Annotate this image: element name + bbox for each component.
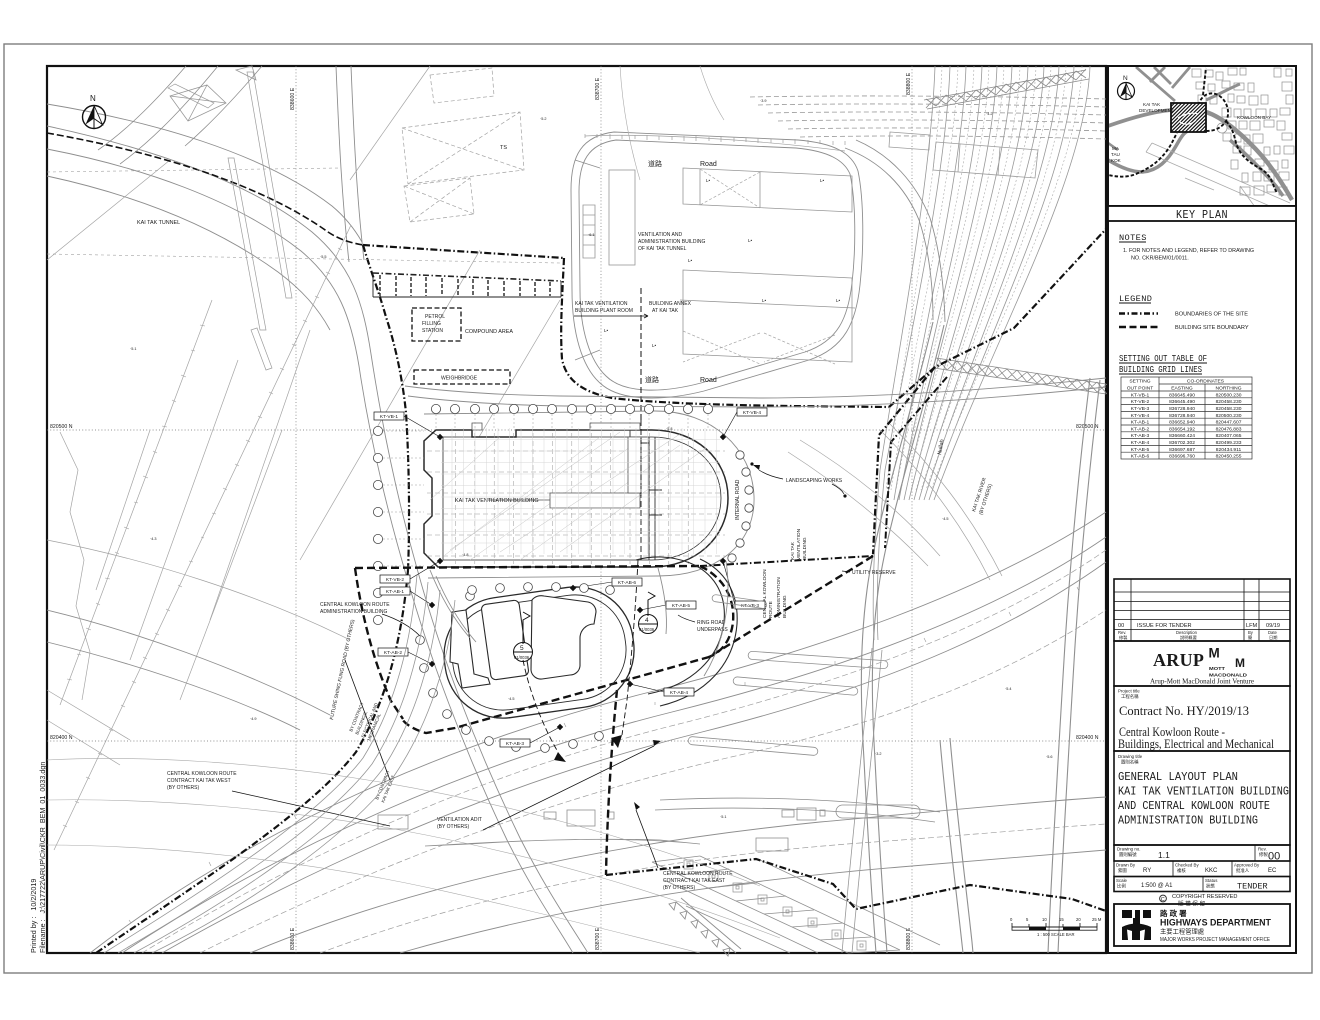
svg-text:Status: Status (1205, 878, 1218, 883)
svg-text:KT-AB-3: KT-AB-3 (506, 741, 524, 747)
svg-text:Drawing no.: Drawing no. (1117, 847, 1140, 852)
svg-text:VENTILATION: VENTILATION (796, 528, 802, 560)
svg-text:Drawing title: Drawing title (1118, 754, 1143, 759)
svg-text:Drawn By: Drawn By (1116, 863, 1136, 868)
svg-text:主要工程管理處: 主要工程管理處 (1160, 927, 1205, 936)
svg-text:Road: Road (700, 161, 717, 168)
svg-text:Filename : J:\217722\ARUP\Ci: Filename : J:\217722\ARUP\Civil\CKR_BEM_… (38, 762, 47, 953)
svg-text:838700 E: 838700 E (595, 927, 601, 950)
svg-text:KAI TAK VENTILATION: KAI TAK VENTILATION (575, 301, 628, 307)
svg-text:LANDSCAPING WORKS: LANDSCAPING WORKS (786, 478, 843, 484)
svg-text:820450.255: 820450.255 (1216, 454, 1242, 460)
svg-text:820400 N: 820400 N (50, 735, 73, 741)
svg-text:修製: 修製 (1119, 634, 1127, 641)
svg-text:·3.2: ·3.2 (875, 752, 882, 756)
svg-text:VENTILATION ADIT: VENTILATION ADIT (437, 817, 482, 823)
svg-text:MA: MA (1112, 146, 1120, 151)
svg-text:1.1: 1.1 (1158, 850, 1170, 860)
svg-text:836702.302: 836702.302 (1169, 440, 1195, 446)
svg-text:838800 E: 838800 E (906, 72, 912, 95)
svg-text:L•: L• (706, 178, 711, 183)
svg-text:Road: Road (700, 377, 717, 384)
svg-text:NOTES: NOTES (1119, 233, 1147, 243)
svg-text:820434.911: 820434.911 (1216, 447, 1242, 453)
svg-text:MAJOR WORKS PROJECT MANAGEMENT: MAJOR WORKS PROJECT MANAGEMENT OFFICE (1160, 937, 1270, 943)
svg-text:ROUTE: ROUTE (768, 601, 774, 618)
svg-text:00: 00 (1118, 623, 1124, 629)
svg-text:CENTRAL KOWLOON: CENTRAL KOWLOON (762, 569, 768, 618)
svg-text:修製: 修製 (1259, 851, 1268, 858)
svg-text:CENTRAL KOWLOON ROUTE: CENTRAL KOWLOON ROUTE (320, 602, 390, 608)
svg-text:·5.1: ·5.1 (720, 815, 727, 819)
svg-text:KT-AB-6: KT-AB-6 (1131, 454, 1150, 460)
svg-text:·4.9: ·4.9 (250, 717, 257, 721)
svg-text:820458.230: 820458.230 (1216, 406, 1242, 412)
svg-text:KAI TAK VENTILATION BUILDING: KAI TAK VENTILATION BUILDING (1118, 786, 1289, 799)
svg-text:836652.940: 836652.940 (1169, 420, 1195, 426)
svg-text:BUILDING GRID LINES: BUILDING GRID LINES (1119, 364, 1202, 375)
svg-text:C: C (1161, 897, 1165, 903)
svg-text:複核: 複核 (1177, 867, 1186, 874)
svg-text:狀態: 狀態 (1206, 883, 1215, 890)
svg-text:836654.192: 836654.192 (1169, 426, 1195, 432)
svg-text:20: 20 (1076, 917, 1081, 922)
svg-text:838600 E: 838600 E (290, 87, 296, 110)
svg-text:ARUP: ARUP (1153, 650, 1204, 670)
svg-text:L•: L• (604, 328, 609, 333)
svg-text:CO-ORDINATES: CO-ORDINATES (1187, 379, 1225, 385)
svg-text:836697.687: 836697.687 (1169, 447, 1195, 453)
svg-text:KT-AB-6: KT-AB-6 (618, 580, 636, 586)
svg-text:CONTRACT KAI TAK WEST: CONTRACT KAI TAK WEST (167, 778, 231, 784)
svg-text:KT-VB-2: KT-VB-2 (386, 577, 404, 583)
svg-text:BUILDING: BUILDING (802, 537, 808, 560)
svg-text:838600 E: 838600 E (290, 927, 296, 950)
svg-text:820400 N: 820400 N (1076, 735, 1099, 741)
svg-text:BOUNDARIES OF THE SITE: BOUNDARIES OF THE SITE (1175, 312, 1248, 318)
svg-text:ISSUE FOR TENDER: ISSUE FOR TENDER (1137, 623, 1192, 629)
svg-text:Buildings, Electrical and Mech: Buildings, Electrical and Mechanical (1118, 737, 1274, 751)
svg-text:Project title: Project title (1118, 689, 1140, 694)
svg-text:比例: 比例 (1117, 883, 1126, 890)
svg-text:820500.230: 820500.230 (1216, 392, 1242, 398)
svg-text:工程名稱: 工程名稱 (1121, 693, 1139, 700)
svg-text:ADMINISTRATION BUILDING: ADMINISTRATION BUILDING (638, 239, 706, 245)
svg-text:AND CENTRAL KOWLOON ROUTE: AND CENTRAL KOWLOON ROUTE (1118, 800, 1270, 813)
svg-text:01/0036: 01/0036 (514, 655, 530, 660)
svg-text:ADMINISTRATION: ADMINISTRATION (776, 577, 782, 618)
svg-text:OUT POINT: OUT POINT (1127, 386, 1154, 392)
svg-text:KT-VB-4: KT-VB-4 (1131, 413, 1150, 419)
svg-text:批准人: 批准人 (1236, 867, 1250, 874)
svg-text:KT-AB-3: KT-AB-3 (1131, 433, 1150, 439)
svg-text:·4.8: ·4.8 (462, 553, 469, 557)
svg-text:820407.065: 820407.065 (1216, 433, 1242, 439)
svg-text:KT-AB-2: KT-AB-2 (384, 650, 402, 656)
svg-text:LEGEND: LEGEND (1119, 294, 1152, 304)
svg-text:·5.8: ·5.8 (666, 427, 673, 431)
svg-text:ADMINISTRATION BUILDING: ADMINISTRATION BUILDING (320, 609, 388, 615)
svg-text:Scale: Scale (1116, 878, 1128, 883)
svg-text:KAI TAK VENTILATION BUILDING: KAI TAK VENTILATION BUILDING (455, 498, 539, 504)
svg-text:820476.883: 820476.883 (1216, 426, 1242, 432)
svg-text:GENERAL LAYOUT PLAN: GENERAL LAYOUT PLAN (1118, 771, 1238, 784)
svg-text:KOK: KOK (1111, 158, 1122, 163)
svg-text:820500.230: 820500.230 (1216, 413, 1242, 419)
svg-text:TENDER: TENDER (1237, 882, 1268, 892)
svg-text:道路: 道路 (648, 159, 662, 168)
svg-text:836696.760: 836696.760 (1169, 454, 1195, 460)
svg-text:KAI TAK: KAI TAK (790, 541, 796, 560)
svg-text:BUILDING PLANT ROOM: BUILDING PLANT ROOM (575, 308, 633, 314)
svg-text:CENTRAL KOWLOON ROUTE: CENTRAL KOWLOON ROUTE (167, 771, 237, 777)
svg-text:KT-VB-2: KT-VB-2 (1131, 399, 1150, 405)
svg-text:820447.607: 820447.607 (1216, 420, 1242, 426)
svg-text:KAI TAK: KAI TAK (1143, 102, 1161, 107)
svg-text:10: 10 (1042, 917, 1047, 922)
svg-text:VENTILATION AND: VENTILATION AND (638, 232, 682, 238)
svg-text:N: N (1123, 75, 1128, 82)
svg-text:RING ROAD: RING ROAD (697, 620, 726, 626)
svg-text:N: N (90, 94, 96, 103)
svg-text:PETROL: PETROL (425, 314, 445, 320)
svg-text:圖則編號: 圖則編號 (1119, 851, 1137, 858)
svg-text:Printed by : 10/2/2019: Printed by : 10/2/2019 (29, 879, 38, 953)
svg-text:RY: RY (1143, 868, 1151, 874)
svg-text:L•: L• (688, 258, 693, 263)
svg-text:5: 5 (520, 645, 524, 652)
svg-text:Contract No. HY/2019/13: Contract No. HY/2019/13 (1119, 704, 1249, 718)
svg-text:(BY OTHERS): (BY OTHERS) (167, 785, 199, 791)
svg-text:·5.2: ·5.2 (540, 117, 547, 121)
svg-text:KKC: KKC (1205, 868, 1218, 874)
svg-text:SETTING OUT TABLE OF: SETTING OUT TABLE OF (1119, 353, 1207, 364)
svg-text:KT-AB-4: KT-AB-4 (1131, 440, 1150, 446)
svg-text:TS: TS (500, 145, 507, 151)
svg-text:·3.9: ·3.9 (760, 99, 767, 103)
svg-text:KT-AB-5: KT-AB-5 (1131, 447, 1150, 453)
svg-text:M: M (1209, 646, 1220, 661)
svg-text:NO. CKR/BEM/01/0011.: NO. CKR/BEM/01/0011. (1131, 256, 1189, 262)
svg-text:L•: L• (820, 178, 825, 183)
svg-text:·4.5: ·4.5 (942, 517, 949, 521)
svg-text:KAI TAK TUNNEL: KAI TAK TUNNEL (137, 220, 180, 226)
svg-text:1. FOR NOTES AND LEGEND, REFER: 1. FOR NOTES AND LEGEND, REFER TO DRAWIN… (1123, 248, 1254, 254)
svg-text:15: 15 (1059, 917, 1064, 922)
svg-text:OF KAI TAK TUNNEL: OF KAI TAK TUNNEL (638, 246, 687, 252)
svg-text:1 : 500 SCALE BAR: 1 : 500 SCALE BAR (1037, 932, 1074, 937)
svg-text:說明概要: 說明概要 (1180, 634, 1197, 641)
svg-text:KT-VB-3: KT-VB-3 (1131, 406, 1150, 412)
svg-text:KT-VB-1: KT-VB-1 (1131, 392, 1150, 398)
svg-text:L•: L• (748, 238, 753, 243)
svg-text:EASTING: EASTING (1171, 386, 1193, 392)
svg-text:KT-AB-4: KT-AB-4 (670, 690, 688, 696)
svg-text:簡: 簡 (1248, 634, 1252, 641)
svg-text:FILLING: FILLING (422, 321, 441, 327)
svg-text:836645.490: 836645.490 (1169, 399, 1195, 405)
svg-text:TAU: TAU (1111, 152, 1120, 157)
svg-text:Checked By: Checked By (1175, 863, 1199, 868)
svg-text:KT-VB-3: KT-VB-3 (741, 603, 759, 609)
svg-text:KT-VB-1: KT-VB-1 (380, 414, 398, 420)
svg-text:MOTT: MOTT (1209, 666, 1225, 672)
svg-text:SETTING: SETTING (1129, 379, 1150, 385)
svg-text:EC: EC (1268, 868, 1277, 874)
svg-text:KT-AB-1: KT-AB-1 (386, 589, 404, 595)
svg-text:·4.2: ·4.2 (986, 112, 993, 116)
svg-text:1:500 @ A1: 1:500 @ A1 (1141, 883, 1173, 889)
svg-text:UTILITY RESERVE: UTILITY RESERVE (852, 570, 896, 576)
svg-text:·4.3: ·4.3 (150, 537, 157, 541)
svg-text:·5.6: ·5.6 (1046, 755, 1053, 759)
svg-text:Arup-Mott MacDonald Joint Vent: Arup-Mott MacDonald Joint Venture (1150, 677, 1255, 686)
svg-text:820500 N: 820500 N (50, 424, 73, 430)
svg-text:ADMINISTRATION BUILDING: ADMINISTRATION BUILDING (1118, 815, 1258, 828)
svg-text:L•: L• (762, 298, 767, 303)
svg-text:836728.940: 836728.940 (1169, 413, 1195, 419)
svg-text:Approved By: Approved By (1234, 863, 1260, 868)
svg-text:圖則名稱: 圖則名稱 (1121, 759, 1139, 766)
svg-text:838700 E: 838700 E (595, 77, 601, 100)
svg-text:(BY OTHERS): (BY OTHERS) (437, 824, 469, 830)
svg-text:KT-VB-4: KT-VB-4 (743, 410, 761, 416)
svg-text:L•: L• (836, 298, 841, 303)
svg-text:INTERNAL ROAD: INTERNAL ROAD (735, 479, 741, 520)
svg-text:LFM: LFM (1246, 623, 1258, 629)
svg-text:836660.424: 836660.424 (1169, 433, 1195, 439)
svg-text:KT-AB-5: KT-AB-5 (672, 603, 690, 609)
svg-text:KEY PLAN: KEY PLAN (1176, 209, 1228, 222)
svg-text:COMPOUND AREA: COMPOUND AREA (465, 329, 513, 335)
svg-text:836728.940: 836728.940 (1169, 406, 1195, 412)
svg-text:KT-AB-1: KT-AB-1 (1131, 420, 1150, 426)
svg-text:綮圖: 綮圖 (1118, 867, 1127, 874)
svg-text:M: M (1235, 656, 1245, 670)
svg-text:·5.1: ·5.1 (130, 347, 137, 351)
svg-text:AT KAI TAK: AT KAI TAK (652, 308, 679, 314)
svg-text:道路: 道路 (645, 375, 659, 384)
svg-text:·6.1: ·6.1 (588, 233, 595, 237)
svg-text:KOWLOON BAY: KOWLOON BAY (1237, 115, 1271, 120)
svg-text:WEIGHBRIDGE: WEIGHBRIDGE (441, 376, 478, 382)
svg-text:Rev.: Rev. (1258, 847, 1267, 852)
svg-text:·5.4: ·5.4 (1005, 687, 1012, 691)
svg-text:820499.233: 820499.233 (1216, 440, 1242, 446)
svg-text:4: 4 (645, 617, 649, 624)
svg-text:NORTHING: NORTHING (1216, 386, 1242, 392)
svg-text:01/0036: 01/0036 (639, 627, 655, 632)
svg-text:·4.5: ·4.5 (508, 697, 515, 701)
svg-text:BUILDING ANNEX: BUILDING ANNEX (649, 301, 692, 307)
svg-text:HIGHWAYS DEPARTMENT: HIGHWAYS DEPARTMENT (1160, 918, 1272, 928)
svg-text:·5.5: ·5.5 (320, 255, 327, 259)
svg-text:CONTRACT KAI TAK EAST: CONTRACT KAI TAK EAST (663, 878, 725, 884)
svg-text:25 M: 25 M (1092, 917, 1102, 922)
svg-text:836645.490: 836645.490 (1169, 392, 1195, 398)
svg-text:L•: L• (652, 343, 657, 348)
svg-text:STATION: STATION (422, 328, 443, 334)
svg-text:BUILDING SITE BOUNDARY: BUILDING SITE BOUNDARY (1175, 325, 1249, 331)
svg-text:KT-AB-2: KT-AB-2 (1131, 426, 1150, 432)
svg-text:09/19: 09/19 (1266, 623, 1280, 629)
svg-text:820500 N: 820500 N (1076, 424, 1099, 430)
svg-text:(BY OTHERS): (BY OTHERS) (663, 885, 695, 891)
svg-text:820458.230: 820458.230 (1216, 399, 1242, 405)
svg-text:路 政 署: 路 政 署 (1160, 908, 1187, 918)
svg-text:BUILDING: BUILDING (782, 595, 788, 618)
svg-text:COPYRIGHT RESERVED: COPYRIGHT RESERVED (1172, 894, 1237, 900)
svg-text:DEVELOPMENT: DEVELOPMENT (1139, 108, 1174, 113)
